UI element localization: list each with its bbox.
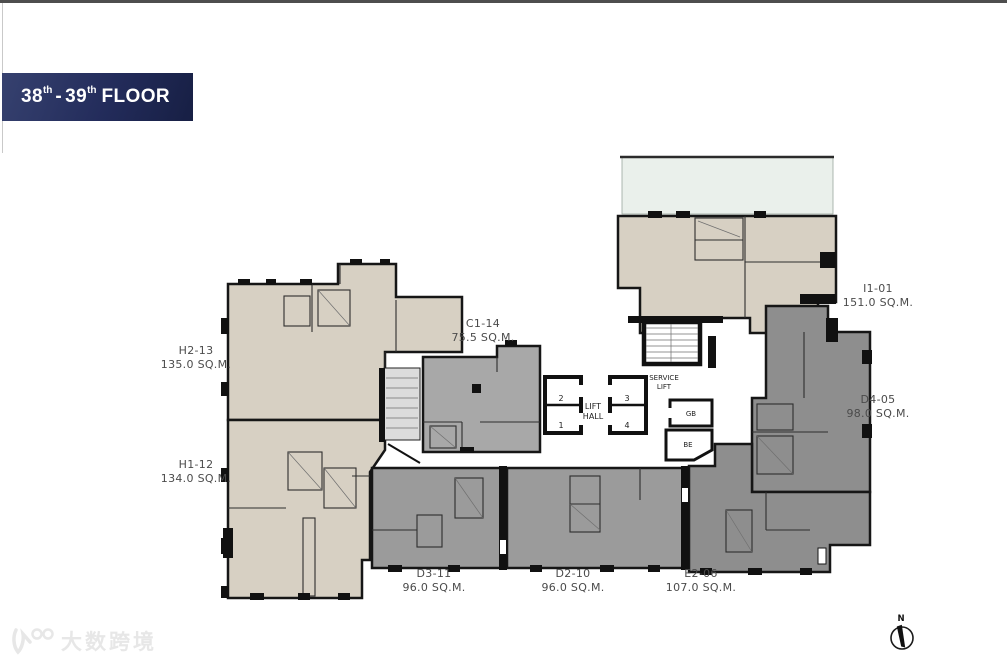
unit-area-e2-06: 107.0 SQ.M. bbox=[666, 581, 736, 594]
lift-bank-left: 2 1 bbox=[545, 377, 583, 433]
lift-hall-label-line2: HALL bbox=[583, 412, 604, 421]
unit-c1-14 bbox=[423, 346, 540, 452]
room-gb-label: GB bbox=[686, 410, 696, 418]
lift-4-label: 4 bbox=[624, 421, 629, 430]
watermark: 大数跨境 bbox=[10, 626, 157, 656]
unit-area-h2-13: 135.0 SQ.M. bbox=[161, 358, 231, 371]
lift-1-label: 1 bbox=[558, 421, 563, 430]
compass-north-label: N bbox=[897, 614, 904, 624]
room-be: BE bbox=[666, 430, 712, 460]
stairs bbox=[644, 322, 700, 364]
unit-label-d2-10: D2-10 bbox=[556, 567, 591, 580]
unit-label-d4-05: D4-05 bbox=[861, 393, 896, 406]
unit-label-h2-13: H2-13 bbox=[179, 344, 214, 357]
unit-label-h1-12: H1-12 bbox=[179, 458, 214, 471]
terrace bbox=[620, 157, 834, 214]
watermark-text: 大数跨境 bbox=[61, 626, 157, 656]
unit-area-i1-01: 151.0 SQ.M. bbox=[843, 296, 913, 309]
unit-label-i1-01: I1-01 bbox=[863, 282, 893, 295]
service-lift-label-line2: LIFT bbox=[657, 383, 672, 391]
floor-plan: 2 1 3 4 LIFT HALL SERVICE LIFT GB BE bbox=[0, 0, 1007, 661]
compass-needle bbox=[897, 625, 905, 648]
lift-3-label: 3 bbox=[624, 394, 629, 403]
unit-area-d3-11: 96.0 SQ.M. bbox=[402, 581, 465, 594]
unit-label-c1-14: C1-14 bbox=[466, 317, 500, 330]
lift-2-label: 2 bbox=[558, 394, 563, 403]
unit-d4-05 bbox=[752, 306, 872, 492]
unit-h1-12 bbox=[228, 420, 385, 598]
unit-area-c1-14: 75.5 SQ.M. bbox=[451, 331, 514, 344]
room-gb: GB bbox=[668, 400, 712, 426]
unit-area-h1-12: 134.0 SQ.M. bbox=[161, 472, 231, 485]
lift-core: 2 1 3 4 LIFT HALL SERVICE LIFT GB BE bbox=[545, 316, 723, 460]
watermark-logo bbox=[10, 626, 54, 656]
service-lift-label-line1: SERVICE bbox=[649, 374, 679, 382]
room-be-label: BE bbox=[683, 441, 692, 449]
lift-bank-right: 3 4 bbox=[608, 377, 646, 433]
unit-area-d2-10: 96.0 SQ.M. bbox=[541, 581, 604, 594]
unit-area-d4-05: 98.0 SQ.M. bbox=[846, 407, 909, 420]
unit-label-d3-11: D3-11 bbox=[417, 567, 452, 580]
unit-d3-11 bbox=[372, 468, 505, 568]
compass: N bbox=[891, 614, 913, 649]
unit-d2-10 bbox=[507, 468, 685, 568]
unit-label-e2-06: E2-06 bbox=[684, 567, 717, 580]
lift-hall-label-line1: LIFT bbox=[585, 402, 601, 411]
